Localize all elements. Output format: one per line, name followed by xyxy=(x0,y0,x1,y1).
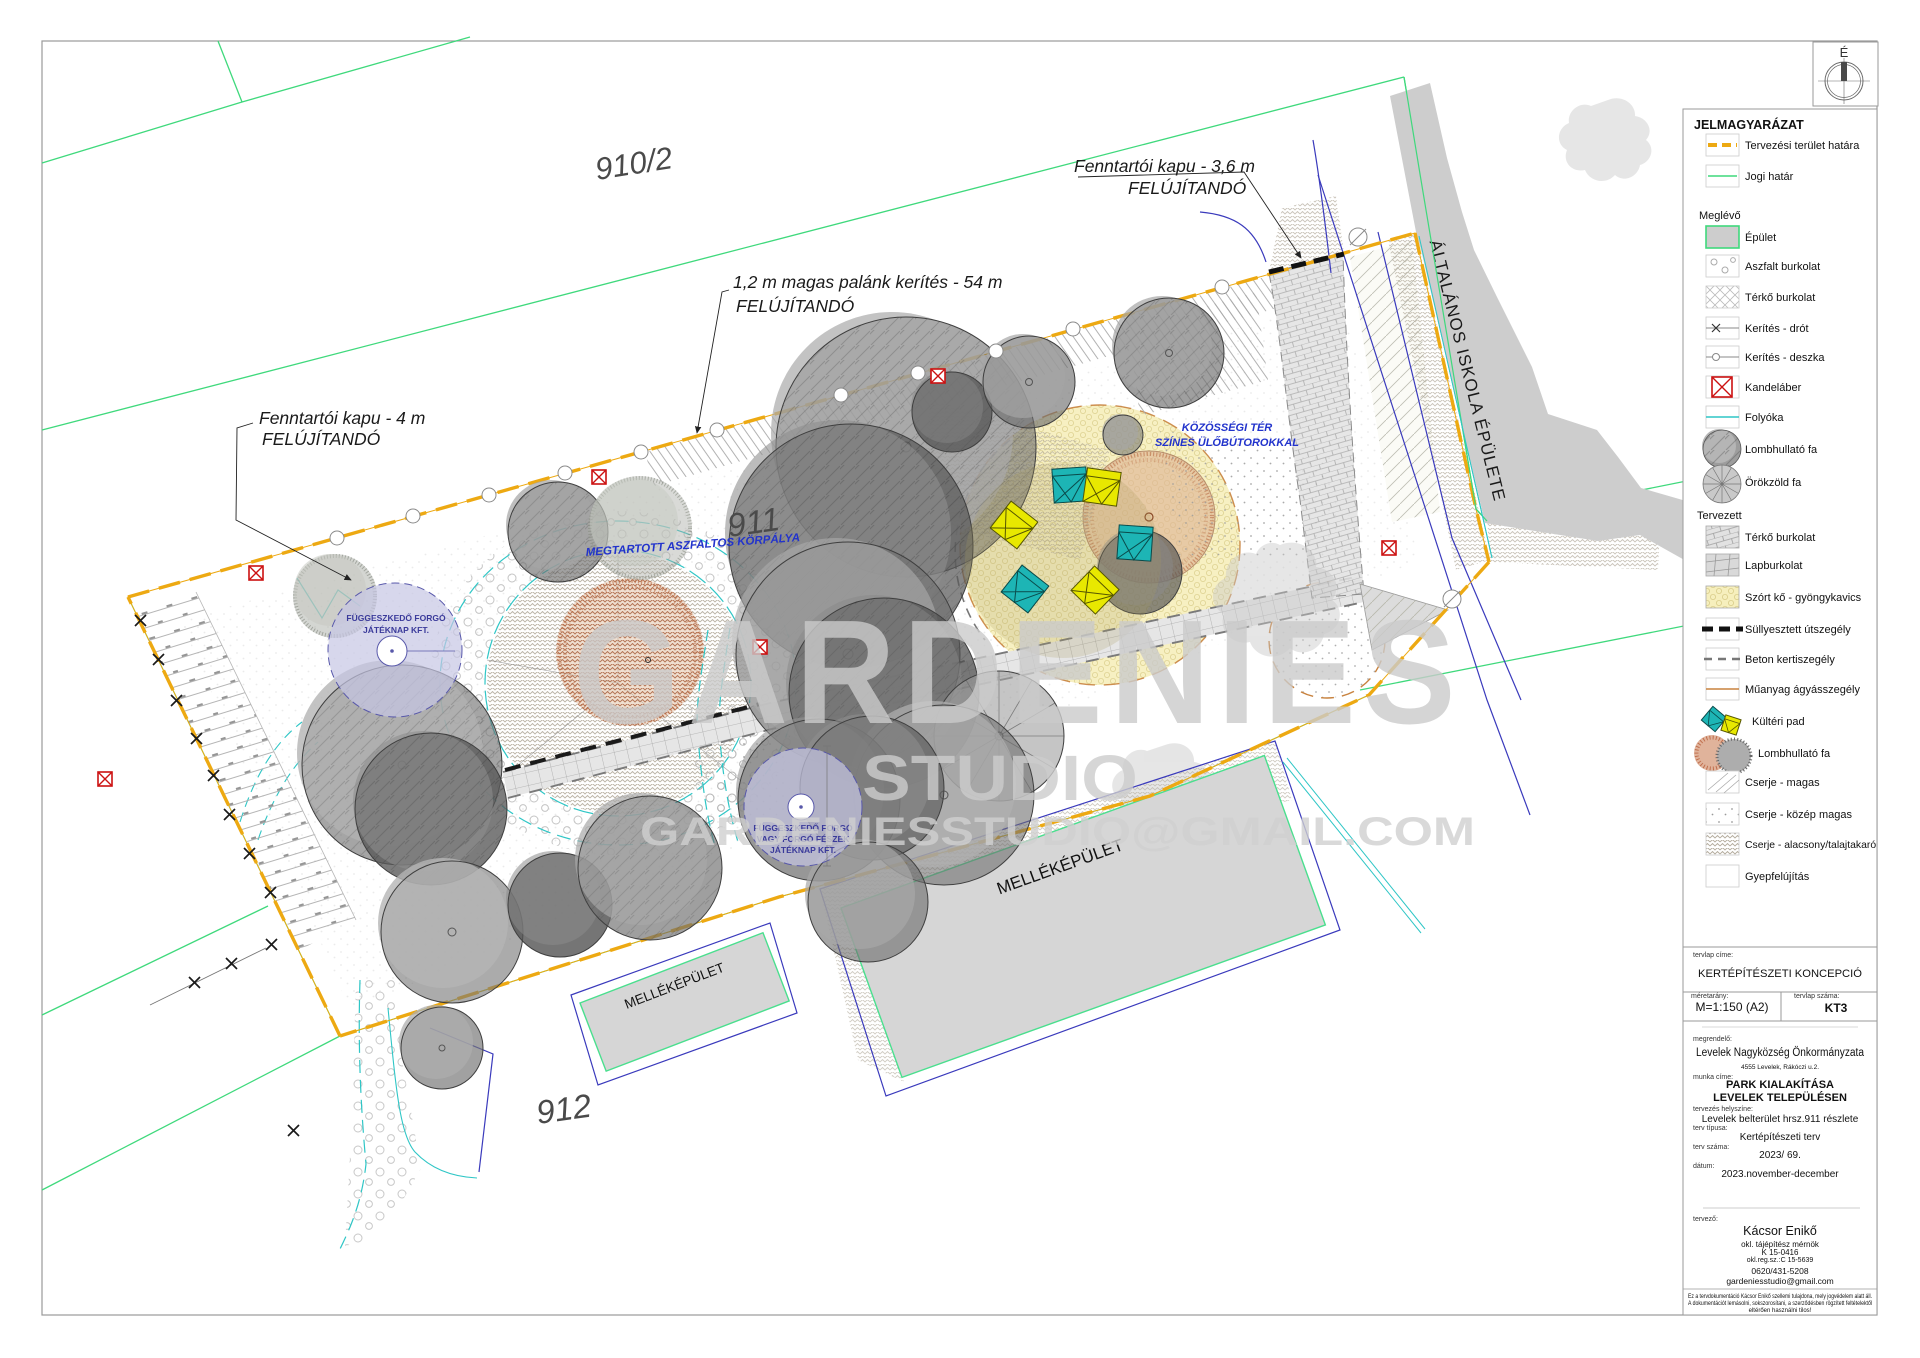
svg-text:Jogi határ: Jogi határ xyxy=(1745,171,1794,183)
svg-text:GARDENIES: GARDENIES xyxy=(573,590,1463,755)
svg-text:Kerítés - deszka: Kerítés - deszka xyxy=(1745,352,1825,364)
svg-text:terv típusa:: terv típusa: xyxy=(1693,1125,1728,1132)
svg-text:Beton kertiszegély: Beton kertiszegély xyxy=(1745,654,1835,666)
svg-text:Kültéri pad: Kültéri pad xyxy=(1752,716,1805,728)
svg-text:912: 912 xyxy=(534,1087,594,1131)
svg-text:Aszfalt burkolat: Aszfalt burkolat xyxy=(1745,261,1820,273)
svg-text:Cserje - alacsony/talajtakaró: Cserje - alacsony/talajtakaró xyxy=(1745,840,1876,851)
svg-text:KT3: KT3 xyxy=(1825,1001,1848,1015)
svg-text:Ez a tervdokumentáció Kácsor E: Ez a tervdokumentáció Kácsor Enikő szell… xyxy=(1688,1294,1872,1300)
svg-text:Kandeláber: Kandeláber xyxy=(1745,382,1802,394)
svg-text:Térkő burkolat: Térkő burkolat xyxy=(1745,292,1815,304)
svg-text:tervlap száma:: tervlap száma: xyxy=(1794,993,1840,1000)
svg-text:JÁTÉKNAP KFT.: JÁTÉKNAP KFT. xyxy=(363,625,429,635)
svg-text:Cserje - magas: Cserje - magas xyxy=(1745,777,1820,789)
svg-text:Szórt kő - gyöngykavics: Szórt kő - gyöngykavics xyxy=(1745,592,1862,604)
svg-text:FELÚJÍTANDÓ: FELÚJÍTANDÓ xyxy=(1128,177,1247,198)
svg-text:M=1:150 (A2): M=1:150 (A2) xyxy=(1695,1000,1768,1014)
svg-text:Kertépítészeti terv: Kertépítészeti terv xyxy=(1740,1132,1821,1143)
svg-text:FELÚJÍTANDÓ: FELÚJÍTANDÓ xyxy=(736,295,855,316)
svg-text:tervlap címe:: tervlap címe: xyxy=(1693,952,1733,959)
svg-text:A dokumentációt lemásolni, sok: A dokumentációt lemásolni, sokszorosítan… xyxy=(1688,1301,1872,1307)
svg-text:Cserje - közép magas: Cserje - közép magas xyxy=(1745,809,1852,821)
svg-text:okl.reg.sz.:C 15-5639: okl.reg.sz.:C 15-5639 xyxy=(1747,1257,1814,1264)
svg-text:Tervezett: Tervezett xyxy=(1697,510,1742,522)
svg-text:Örökzöld fa: Örökzöld fa xyxy=(1745,477,1802,489)
svg-text:GARDENIESSTUDIO@GMAIL.COM: GARDENIESSTUDIO@GMAIL.COM xyxy=(640,810,1475,854)
svg-text:megrendelő:: megrendelő: xyxy=(1693,1036,1732,1043)
svg-text:Lapburkolat: Lapburkolat xyxy=(1745,560,1803,572)
svg-text:Tervezési terület határa: Tervezési terület határa xyxy=(1745,140,1860,152)
svg-text:dátum:: dátum: xyxy=(1693,1163,1714,1170)
svg-text:1,2 m magas palánk kerítés - 5: 1,2 m magas palánk kerítés - 54 m xyxy=(733,272,1002,292)
svg-text:Meglévő: Meglévő xyxy=(1699,210,1741,222)
svg-text:eltérően használni tilos!: eltérően használni tilos! xyxy=(1749,1308,1812,1314)
svg-text:méretarány:: méretarány: xyxy=(1691,993,1728,1000)
svg-text:2023/ 69.: 2023/ 69. xyxy=(1759,1150,1801,1161)
svg-text:LEVELEK TELEPÜLÉSEN: LEVELEK TELEPÜLÉSEN xyxy=(1713,1091,1847,1104)
svg-text:2023.november-december: 2023.november-december xyxy=(1721,1169,1839,1180)
svg-text:Levelek belterület hrsz.911 ré: Levelek belterület hrsz.911 részlete xyxy=(1702,1114,1859,1125)
svg-text:STUDIO: STUDIO xyxy=(862,742,1138,814)
svg-text:4555 Levelek, Rákóczi u.2.: 4555 Levelek, Rákóczi u.2. xyxy=(1741,1064,1819,1071)
svg-text:K 15-0416: K 15-0416 xyxy=(1762,1248,1799,1257)
svg-text:0620/431-5208: 0620/431-5208 xyxy=(1751,1266,1808,1276)
svg-text:terv száma:: terv száma: xyxy=(1693,1144,1729,1151)
svg-text:Kerítés - drót: Kerítés - drót xyxy=(1745,323,1809,335)
svg-text:KÖZÖSSÉGI TÉR: KÖZÖSSÉGI TÉR xyxy=(1182,421,1273,434)
svg-text:Süllyesztett útszegély: Süllyesztett útszegély xyxy=(1745,624,1851,636)
svg-text:Műanyag ágyásszegély: Műanyag ágyásszegély xyxy=(1745,684,1860,696)
svg-text:Térkő burkolat: Térkő burkolat xyxy=(1745,532,1815,544)
svg-text:Fenntartói kapu - 3,6 m: Fenntartói kapu - 3,6 m xyxy=(1074,156,1255,176)
svg-text:Lombhullató fa: Lombhullató fa xyxy=(1758,748,1831,760)
svg-text:PARK KIALAKÍTÁSA: PARK KIALAKÍTÁSA xyxy=(1726,1078,1834,1091)
svg-text:Folyóka: Folyóka xyxy=(1745,412,1784,424)
svg-text:Épület: Épület xyxy=(1745,231,1776,244)
svg-text:gardeniesstudio@gmail.com: gardeniesstudio@gmail.com xyxy=(1726,1276,1833,1286)
svg-text:KERTÉPÍTÉSZETI KONCEPCIÓ: KERTÉPÍTÉSZETI KONCEPCIÓ xyxy=(1698,967,1862,980)
svg-text:FELÚJÍTANDÓ: FELÚJÍTANDÓ xyxy=(262,428,381,449)
svg-text:Lombhullató fa: Lombhullató fa xyxy=(1745,444,1818,456)
svg-text:Levelek Nagyközség Önkormányza: Levelek Nagyközség Önkormányzata xyxy=(1696,1047,1865,1059)
svg-text:É: É xyxy=(1840,45,1849,60)
svg-text:SZÍNES ÜLŐBÚTOROKKAL: SZÍNES ÜLŐBÚTOROKKAL xyxy=(1155,436,1299,449)
svg-text:JELMAGYARÁZAT: JELMAGYARÁZAT xyxy=(1694,117,1804,132)
svg-text:Fenntartói kapu - 4 m: Fenntartói kapu - 4 m xyxy=(259,408,425,428)
svg-text:Gyepfelújítás: Gyepfelújítás xyxy=(1745,871,1810,883)
svg-text:Kácsor Enikő: Kácsor Enikő xyxy=(1743,1224,1817,1238)
svg-text:tervező:: tervező: xyxy=(1693,1216,1718,1223)
svg-text:tervezés helyszíne:: tervezés helyszíne: xyxy=(1693,1106,1753,1113)
svg-text:FÜGGESZKEDŐ FORGÓ: FÜGGESZKEDŐ FORGÓ xyxy=(346,612,446,623)
